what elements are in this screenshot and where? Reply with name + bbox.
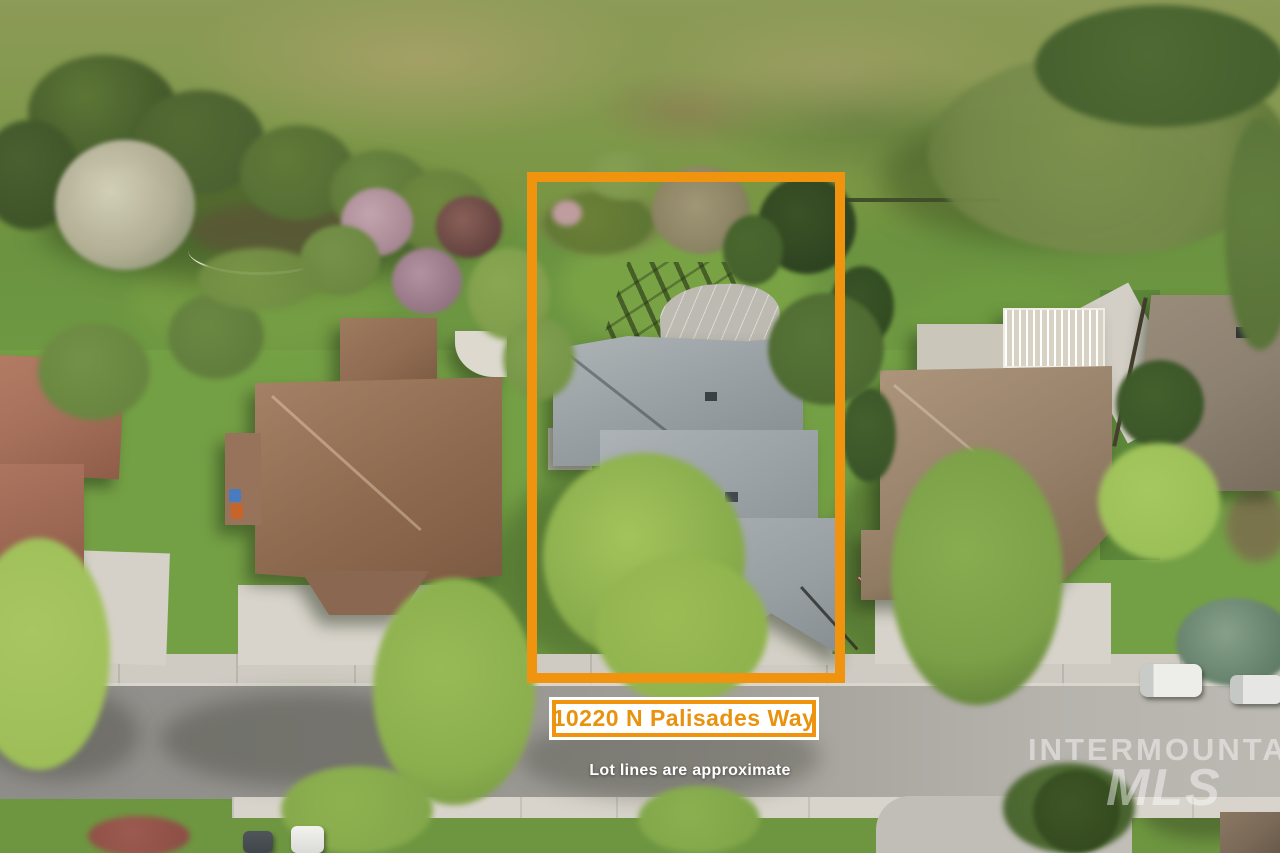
blossom-tree xyxy=(55,140,195,270)
tree xyxy=(1035,5,1280,127)
trash-bin-blue xyxy=(229,489,241,502)
mls-watermark: INTERMOUNTAIN MLS xyxy=(1028,732,1280,818)
roof-facet xyxy=(255,377,502,584)
tree xyxy=(638,786,760,853)
roof-facet xyxy=(340,318,437,388)
bright-tree xyxy=(1098,443,1220,560)
red-tree xyxy=(436,196,502,258)
trash-bin-orange xyxy=(231,504,243,519)
conifer xyxy=(842,388,896,482)
tree xyxy=(38,323,150,420)
lot-lines-disclaimer: Lot lines are approximate xyxy=(545,762,835,780)
parked-car-white xyxy=(1230,675,1280,704)
red-shrub xyxy=(88,816,190,853)
center-house xyxy=(225,315,510,610)
patio xyxy=(917,324,1005,376)
pink-blossom-tree xyxy=(392,248,462,314)
street-tree xyxy=(891,448,1063,705)
corner-roof xyxy=(1220,812,1280,853)
parked-car-dark xyxy=(243,831,273,853)
lot-boundary-box xyxy=(527,172,845,683)
conifer xyxy=(1116,360,1204,448)
address-label: 10220 N Palisades Way xyxy=(552,700,816,737)
parked-van-white xyxy=(1140,664,1202,697)
address-text: 10220 N Palisades Way xyxy=(553,705,816,732)
garden-shrubs xyxy=(198,248,320,310)
parked-car-white xyxy=(291,826,324,853)
aerial-property-photo: 10220 N Palisades Way Lot lines are appr… xyxy=(0,0,1280,853)
pergola xyxy=(1003,308,1105,368)
street-tree xyxy=(373,578,535,805)
